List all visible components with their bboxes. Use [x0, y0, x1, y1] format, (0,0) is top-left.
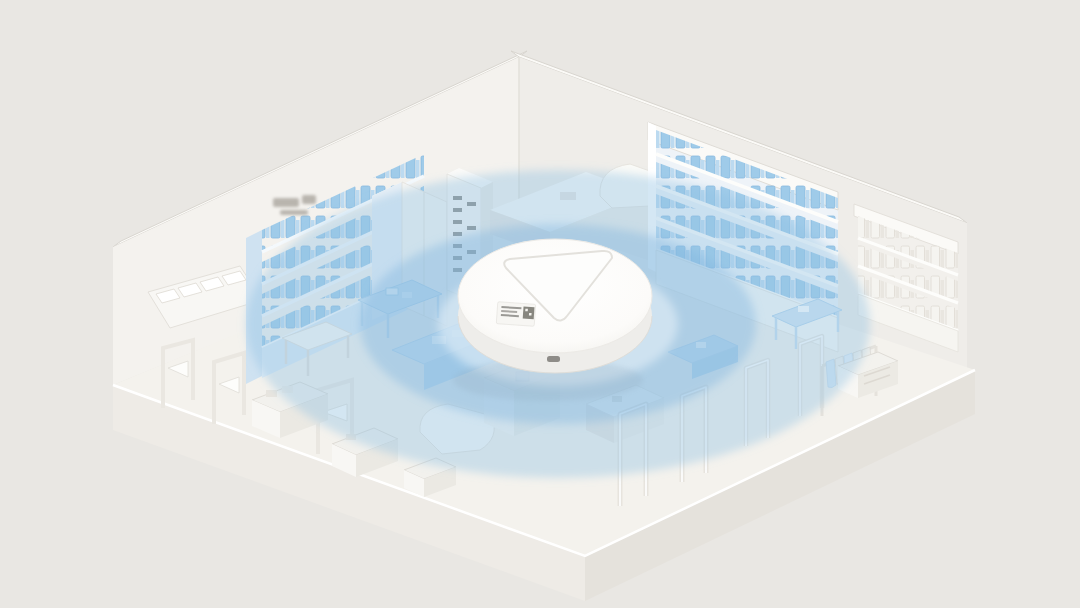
sticker-qr-pixel — [529, 313, 532, 316]
sign-word — [302, 195, 316, 204]
port-notch — [547, 356, 560, 362]
qr-sticker — [496, 302, 535, 327]
store-wifi-coverage-illustration — [0, 0, 1080, 608]
sign-word — [280, 210, 308, 215]
sign-word — [273, 198, 299, 207]
sticker-qr-pixel — [525, 309, 528, 312]
crate-content — [266, 390, 277, 397]
illustration-stage — [0, 0, 1080, 608]
sticker-qr — [523, 307, 535, 320]
access-point — [453, 239, 652, 401]
